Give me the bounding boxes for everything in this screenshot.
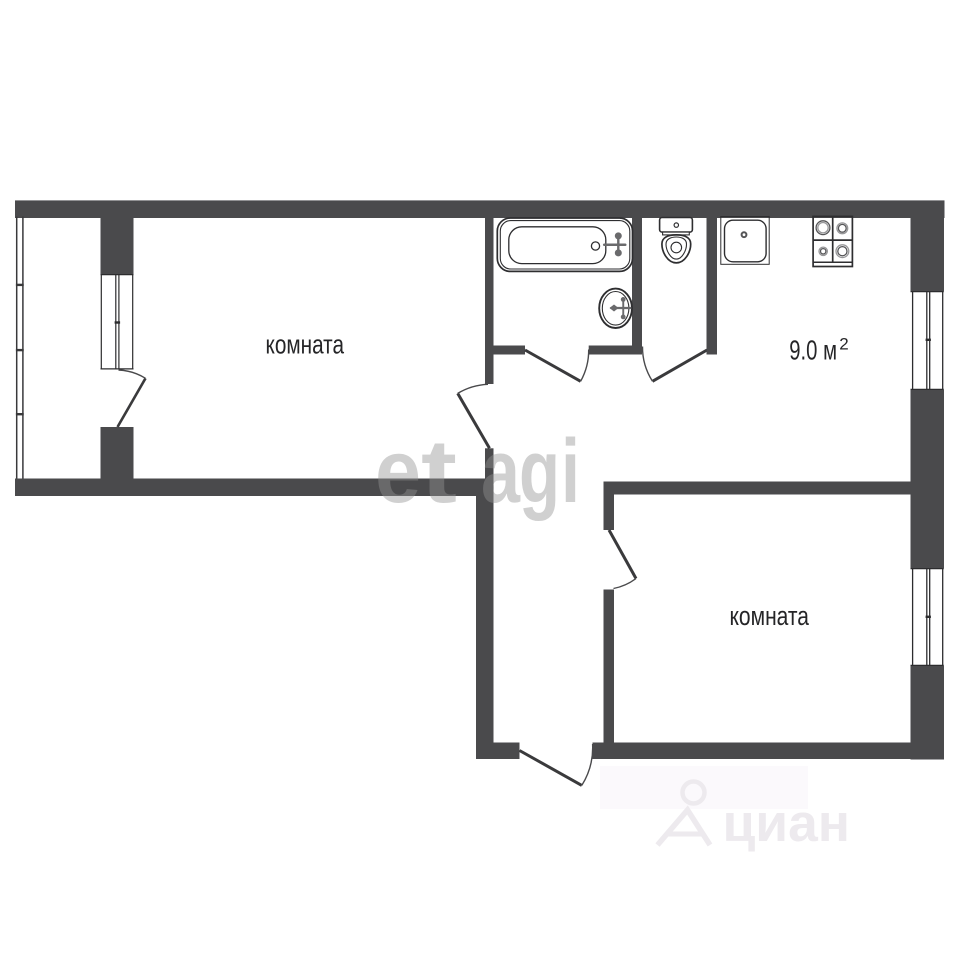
svg-text:9.0 м: 9.0 м [789, 335, 837, 366]
svg-text:комната: комната [730, 601, 810, 631]
svg-text:g: g [519, 422, 560, 522]
svg-text:i: i [561, 422, 580, 522]
svg-text:t: t [421, 422, 457, 522]
svg-text:a: a [481, 422, 521, 522]
svg-text:2: 2 [839, 335, 848, 354]
svg-text:e: e [375, 422, 421, 522]
svg-text:циан: циан [723, 794, 851, 853]
svg-text:комната: комната [266, 330, 345, 360]
